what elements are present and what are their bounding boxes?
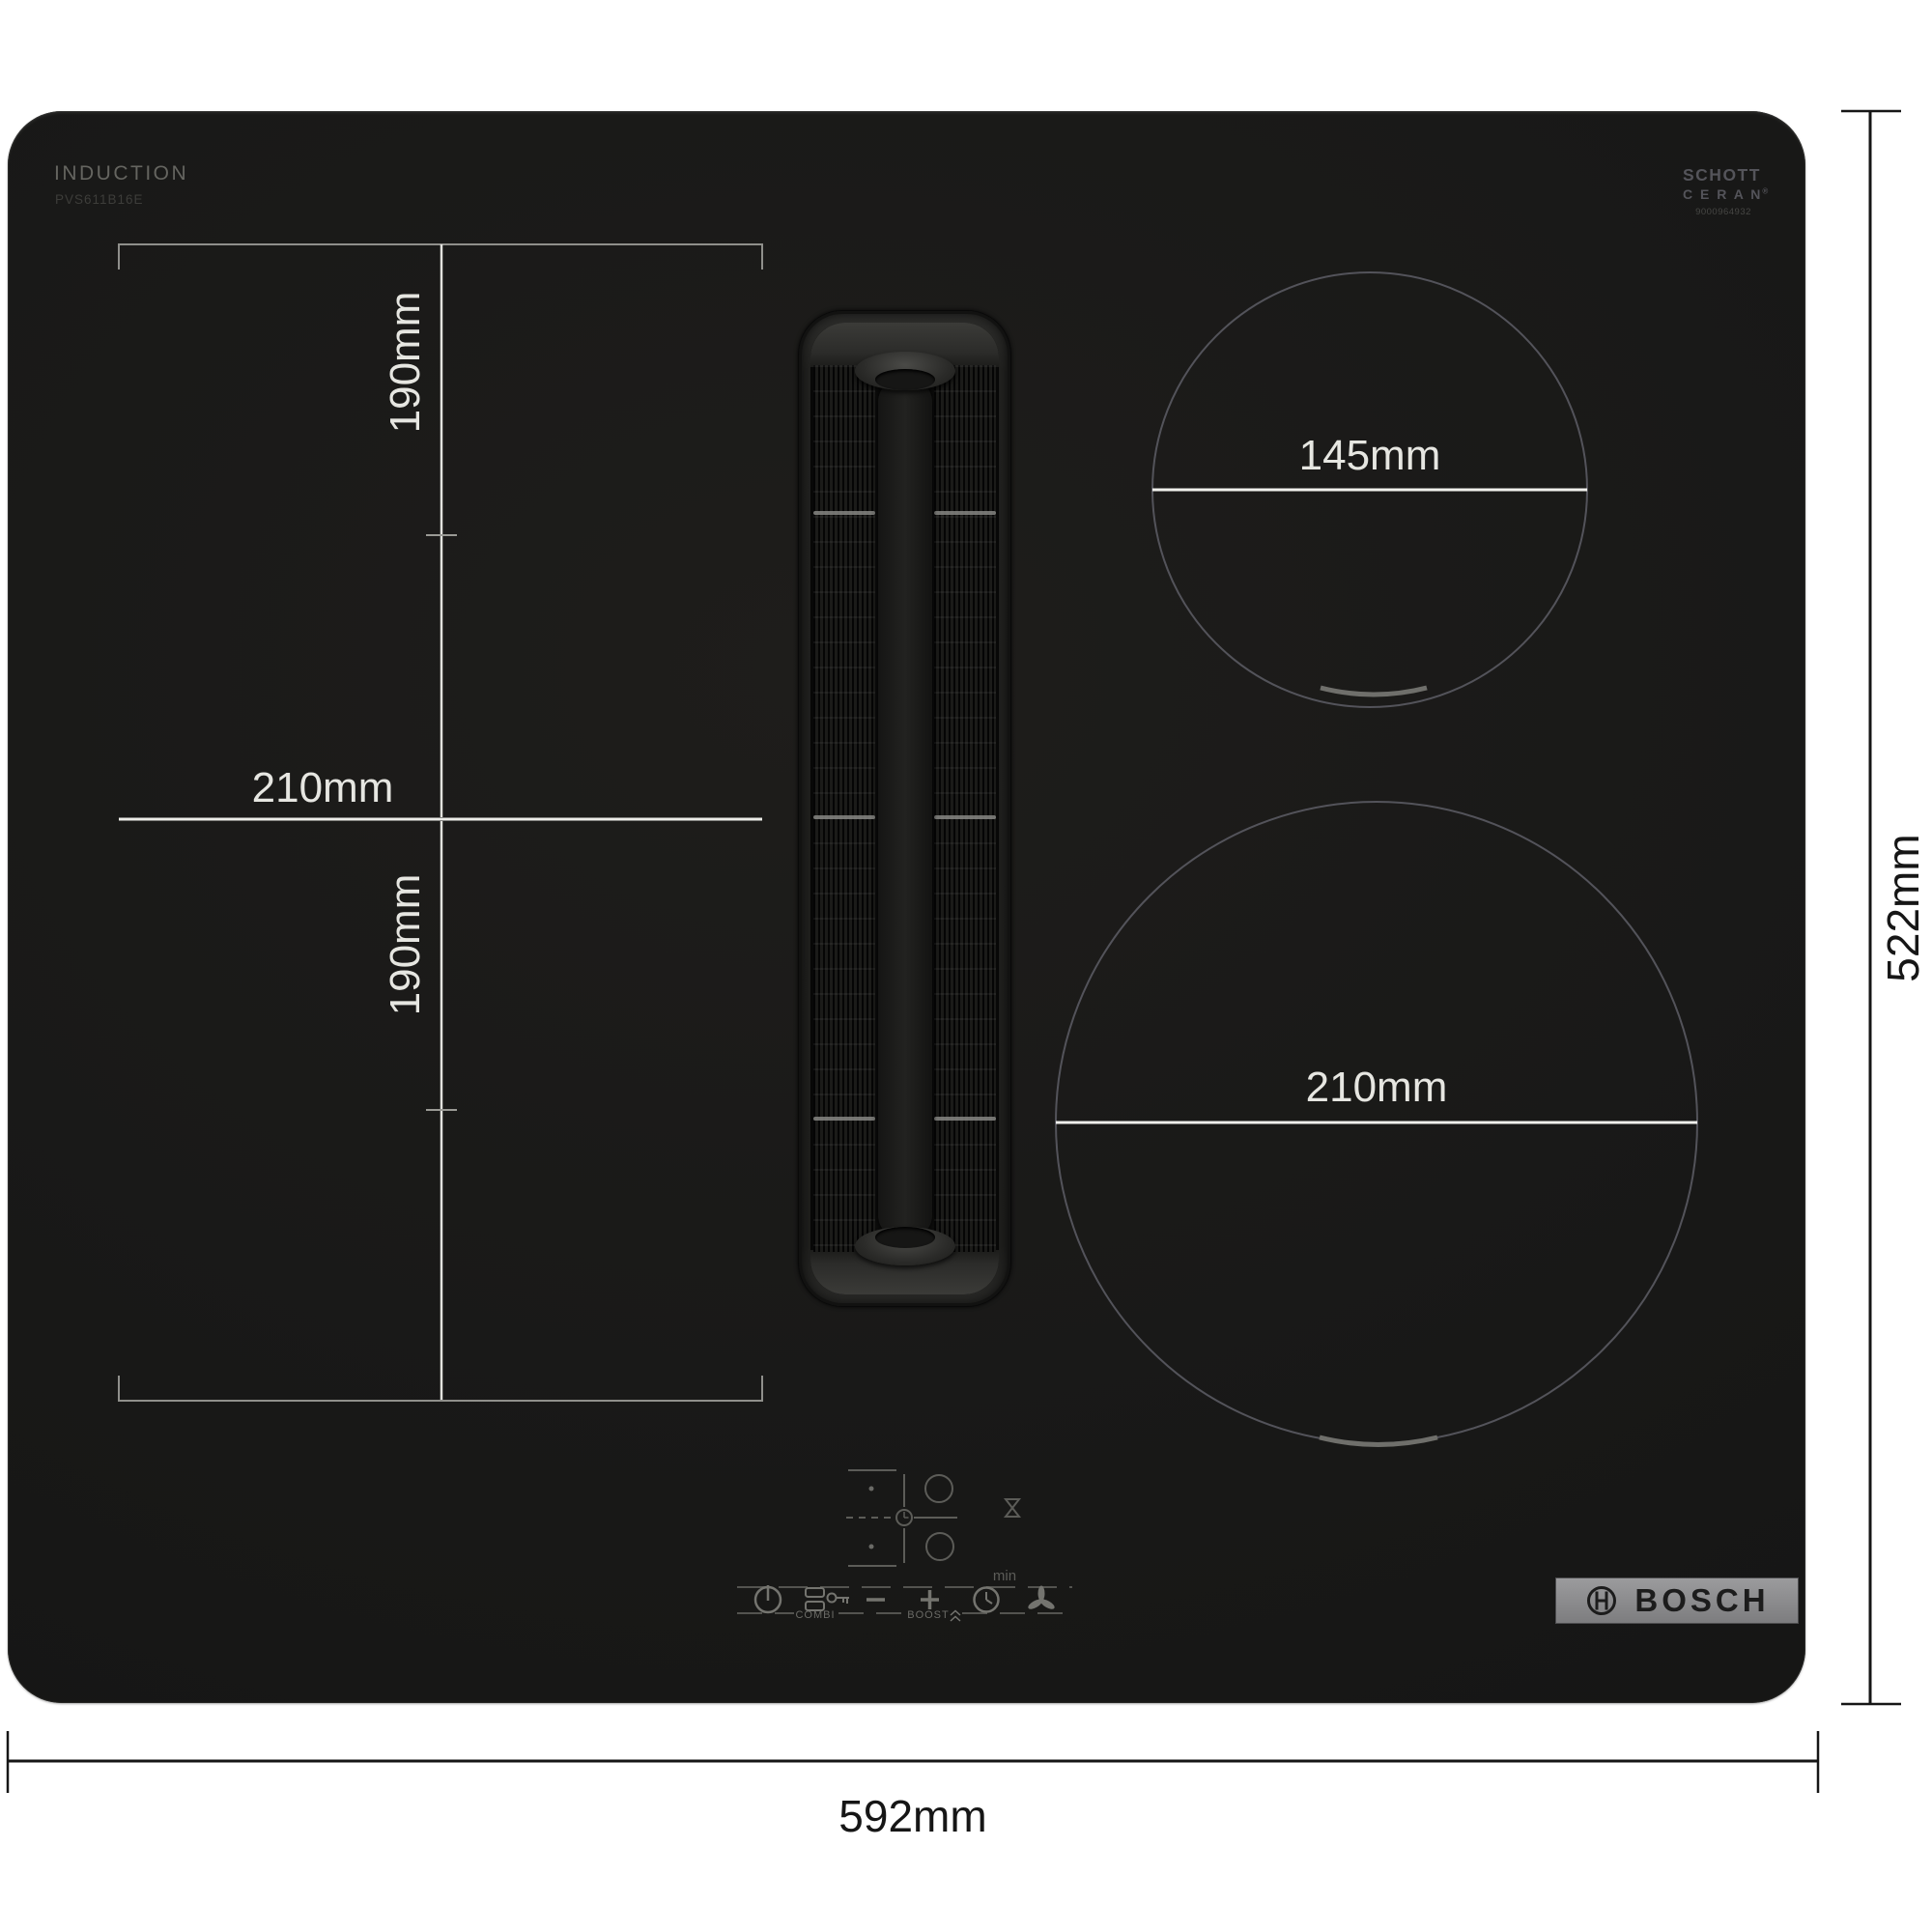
product-dimension-diagram: INDUCTION PVS611B16E SCHOTT C E R A N® 9…	[0, 0, 1932, 1932]
schott-ceran-logo: SCHOTT C E R A N®	[1683, 165, 1764, 202]
filter-accent-line	[934, 1117, 996, 1121]
vent-grille-inner	[810, 323, 999, 1294]
vent-center-bar	[878, 379, 932, 1238]
schott-logo-line1: SCHOTT	[1683, 165, 1764, 185]
overall-depth-label: 522mm	[1878, 834, 1928, 981]
induction-label: INDUCTION	[54, 162, 188, 185]
vent-knob-top-hub	[875, 369, 935, 390]
overall-width-label: 592mm	[838, 1791, 986, 1841]
filter-accent-line	[934, 815, 996, 819]
bosch-symbol-icon	[1584, 1583, 1619, 1618]
model-number: PVS611B16E	[55, 192, 144, 207]
vent-knob-bottom-hub	[875, 1227, 935, 1248]
schott-logo-line2: C E R A N®	[1683, 186, 1764, 202]
filter-accent-line	[813, 511, 875, 515]
registered-mark: ®	[1762, 186, 1770, 195]
glass-part-number: 9000964932	[1683, 207, 1764, 217]
bosch-logo-badge: BOSCH	[1555, 1577, 1799, 1624]
vent-extractor-grille	[798, 310, 1011, 1307]
filter-accent-line	[813, 815, 875, 819]
filter-accent-line	[934, 511, 996, 515]
filter-accent-line	[813, 1117, 875, 1121]
bosch-logo-text: BOSCH	[1634, 1584, 1769, 1616]
